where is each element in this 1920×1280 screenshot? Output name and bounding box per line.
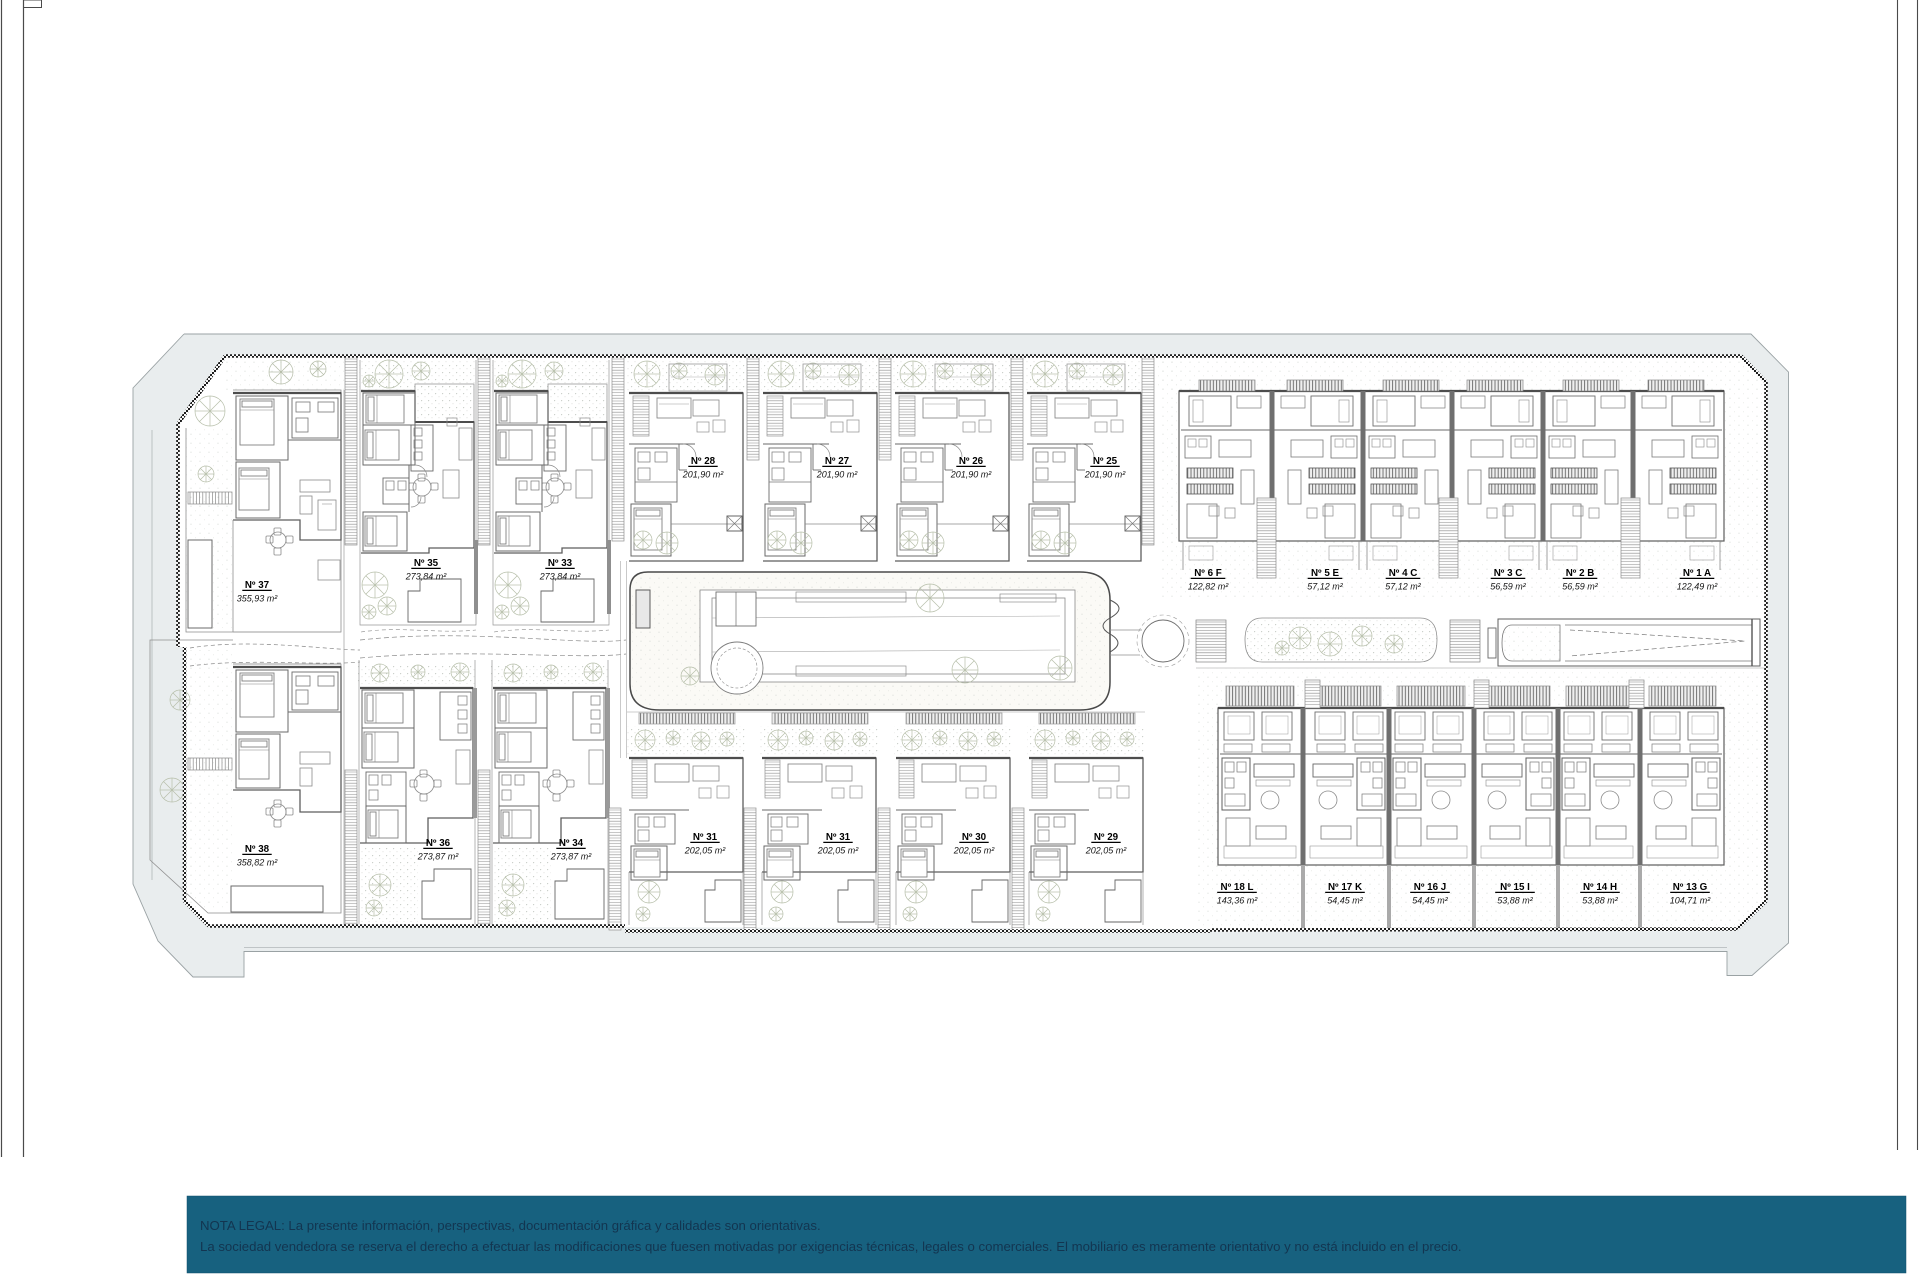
svg-text:57,12 m²: 57,12 m² [1307,582,1344,592]
svg-text:Nº 6 F: Nº 6 F [1194,568,1222,579]
svg-text:122,49 m²: 122,49 m² [1677,582,1719,592]
svg-text:Nº 37: Nº 37 [245,580,270,591]
svg-text:53,88 m²: 53,88 m² [1582,896,1619,906]
svg-text:Nº 28: Nº 28 [691,456,716,467]
svg-text:Nº 14 H: Nº 14 H [1583,882,1617,893]
svg-text:Nº 25: Nº 25 [1093,456,1118,467]
svg-text:Nº 29: Nº 29 [1094,832,1119,843]
svg-text:143,36 m²: 143,36 m² [1217,896,1259,906]
svg-text:273,84 m²: 273,84 m² [539,572,582,582]
svg-text:273,84 m²: 273,84 m² [405,572,448,582]
svg-text:57,12 m²: 57,12 m² [1385,582,1422,592]
svg-text:54,45 m²: 54,45 m² [1412,896,1449,906]
svg-text:Nº 30: Nº 30 [962,832,987,843]
svg-text:201,90 m²: 201,90 m² [1084,470,1127,480]
svg-text:202,05 m²: 202,05 m² [817,846,860,856]
svg-text:273,87 m²: 273,87 m² [417,852,460,862]
svg-text:Nº 4 C: Nº 4 C [1389,568,1418,579]
svg-text:202,05 m²: 202,05 m² [1085,846,1128,856]
svg-text:Nº 2 B: Nº 2 B [1566,568,1595,579]
svg-text:54,45 m²: 54,45 m² [1327,896,1364,906]
svg-text:355,93 m²: 355,93 m² [237,594,279,604]
svg-text:Nº 38: Nº 38 [245,844,270,855]
svg-text:Nº 31: Nº 31 [826,832,851,843]
svg-text:Nº 31: Nº 31 [693,832,718,843]
svg-text:Nº 15 I: Nº 15 I [1500,882,1530,893]
svg-text:56,59 m²: 56,59 m² [1562,582,1599,592]
svg-text:202,05 m²: 202,05 m² [684,846,727,856]
svg-text:Nº 17 K: Nº 17 K [1328,882,1362,893]
svg-text:201,90 m²: 201,90 m² [682,470,725,480]
svg-text:Nº 33: Nº 33 [548,558,573,569]
svg-text:Nº 34: Nº 34 [559,838,584,849]
svg-text:Nº 16 J: Nº 16 J [1414,882,1446,893]
svg-text:202,05 m²: 202,05 m² [953,846,996,856]
svg-text:358,82 m²: 358,82 m² [237,858,279,868]
svg-text:201,90 m²: 201,90 m² [950,470,993,480]
svg-text:122,82 m²: 122,82 m² [1188,582,1230,592]
svg-text:Nº 36: Nº 36 [426,838,451,849]
svg-text:Nº 1 A: Nº 1 A [1683,568,1711,579]
svg-text:56,59 m²: 56,59 m² [1490,582,1527,592]
svg-text:Nº 26: Nº 26 [959,456,984,467]
svg-text:Nº 35: Nº 35 [414,558,439,569]
svg-text:104,71 m²: 104,71 m² [1670,896,1712,906]
svg-text:53,88 m²: 53,88 m² [1497,896,1534,906]
svg-text:Nº 18 L: Nº 18 L [1221,882,1254,893]
svg-text:Nº 3 C: Nº 3 C [1494,568,1523,579]
svg-text:Nº 13 G: Nº 13 G [1673,882,1708,893]
svg-text:201,90 m²: 201,90 m² [816,470,859,480]
svg-text:273,87 m²: 273,87 m² [550,852,593,862]
svg-text:La sociedad vendedora se reser: La sociedad vendedora se reserva el dere… [200,1239,1462,1254]
svg-text:Nº 5 E: Nº 5 E [1311,568,1340,579]
svg-text:NOTA LEGAL: La presente inform: NOTA LEGAL: La presente información, per… [200,1218,821,1233]
svg-text:Nº 27: Nº 27 [825,456,850,467]
